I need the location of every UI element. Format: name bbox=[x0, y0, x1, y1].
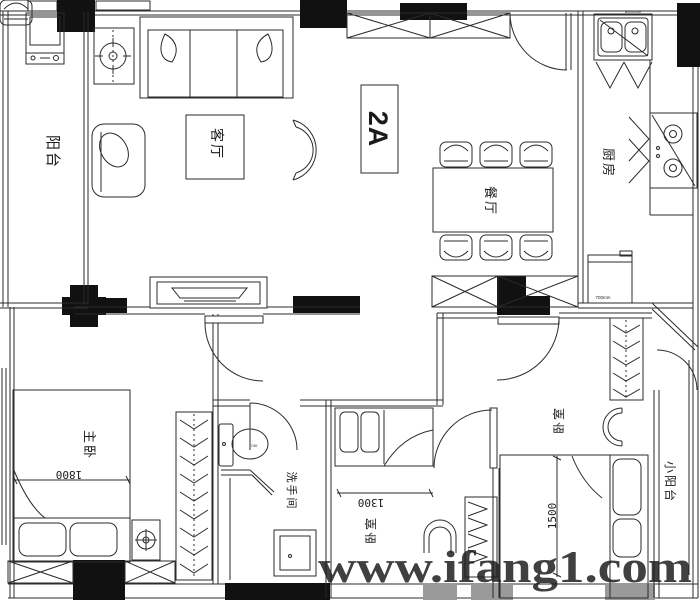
tv-cabinet bbox=[150, 277, 267, 308]
dining-room-label: 餐厅 bbox=[483, 186, 498, 216]
living-room-label: 客厅 bbox=[209, 128, 225, 160]
kitchen-label: 厨房 bbox=[601, 148, 616, 178]
bathroom-label: 洗手间 bbox=[285, 472, 299, 511]
master-bed-dimension: 1800 bbox=[56, 468, 83, 481]
watermark: www.ifang1.com bbox=[318, 541, 692, 592]
kitchen-sink bbox=[594, 14, 652, 88]
bedroom-middle-door bbox=[434, 408, 497, 468]
floor-plan: 2A 阳台 客厅 餐厅 厨房 主卧 洗手间 卧室 卧室 小阳台 1800 130… bbox=[0, 0, 700, 600]
master-wardrobe bbox=[176, 412, 212, 580]
small-balcony-door bbox=[657, 350, 697, 390]
unit-label: 2A bbox=[363, 111, 393, 148]
right-bed-dimension: 1500 bbox=[546, 503, 559, 530]
sofa bbox=[140, 17, 293, 98]
sink-size-label: 800X450 bbox=[625, 9, 642, 14]
stove bbox=[629, 113, 697, 188]
nightstand bbox=[132, 520, 160, 560]
small-balcony-label: 小阳台 bbox=[663, 461, 678, 503]
unit-label-box: 2A bbox=[361, 85, 398, 173]
bedroom-middle-label: 卧室 bbox=[363, 516, 378, 544]
entry-door bbox=[510, 13, 571, 70]
fridge-size-label: 700mm bbox=[595, 295, 610, 300]
armchair bbox=[92, 124, 145, 197]
toilet bbox=[219, 424, 268, 466]
middle-bed bbox=[335, 408, 433, 497]
hall-door bbox=[497, 317, 559, 380]
right-chair bbox=[603, 408, 622, 446]
right-wardrobe bbox=[610, 318, 643, 400]
master-bedroom bbox=[13, 390, 212, 580]
bedroom-right-label: 卧室 bbox=[551, 406, 566, 434]
dining-room bbox=[0, 0, 553, 260]
bathroom-sink bbox=[274, 530, 316, 576]
bathroom bbox=[219, 424, 316, 580]
living-room bbox=[92, 17, 316, 308]
dimension-labels: 1800 1300 1500 bbox=[56, 468, 559, 529]
floor-plan-canvas: 2A 阳台 客厅 餐厅 厨房 主卧 洗手间 卧室 卧室 小阳台 1800 130… bbox=[0, 0, 700, 600]
shower bbox=[221, 470, 274, 580]
ac-platform-box bbox=[96, 1, 150, 10]
master-bedroom-door bbox=[205, 316, 263, 381]
side-chair bbox=[293, 120, 316, 180]
balcony-label: 阳台 bbox=[44, 135, 61, 169]
toilet-size-label: 740 bbox=[251, 443, 258, 448]
ceiling-lamp-icon bbox=[94, 28, 134, 84]
middle-bed-dimension: 1300 bbox=[358, 496, 385, 509]
master-bedroom-label: 主卧 bbox=[82, 430, 97, 460]
